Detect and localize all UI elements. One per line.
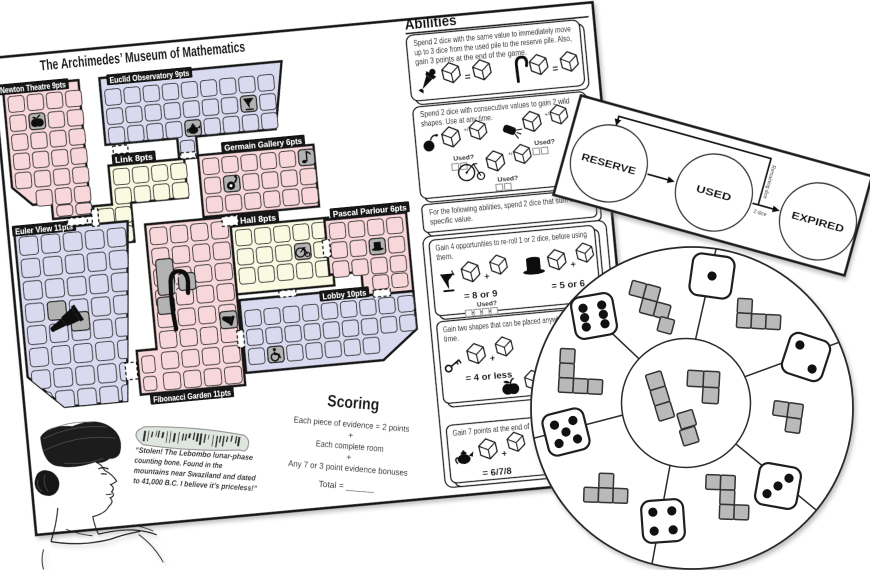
svg-text:+: + <box>570 259 576 269</box>
svg-text:time.: time. <box>444 334 460 344</box>
svg-text:+: + <box>489 353 495 363</box>
svg-text:+: + <box>484 271 490 281</box>
svg-text:+: + <box>348 430 354 440</box>
svg-text:=: = <box>552 64 559 76</box>
svg-text:+: + <box>346 452 352 462</box>
svg-text:+: + <box>501 448 507 458</box>
svg-text:them.: them. <box>436 252 454 263</box>
svg-text:=: = <box>464 72 471 84</box>
